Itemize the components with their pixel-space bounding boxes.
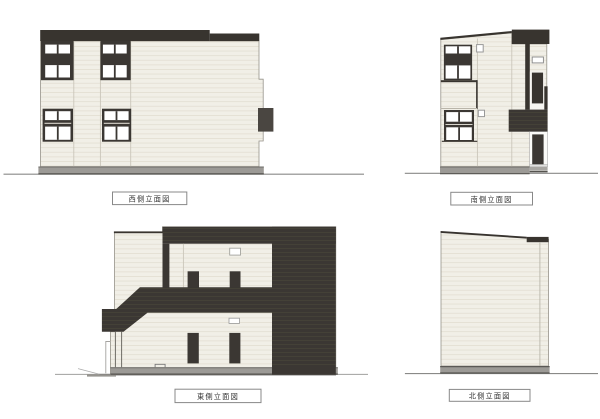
- svg-text:南側立面図: 南側立面図: [471, 195, 513, 204]
- svg-text:西側立面図: 西側立面図: [129, 194, 171, 203]
- svg-text:北側立面図: 北側立面図: [469, 391, 511, 400]
- svg-text:東側立面図: 東側立面図: [197, 392, 239, 401]
